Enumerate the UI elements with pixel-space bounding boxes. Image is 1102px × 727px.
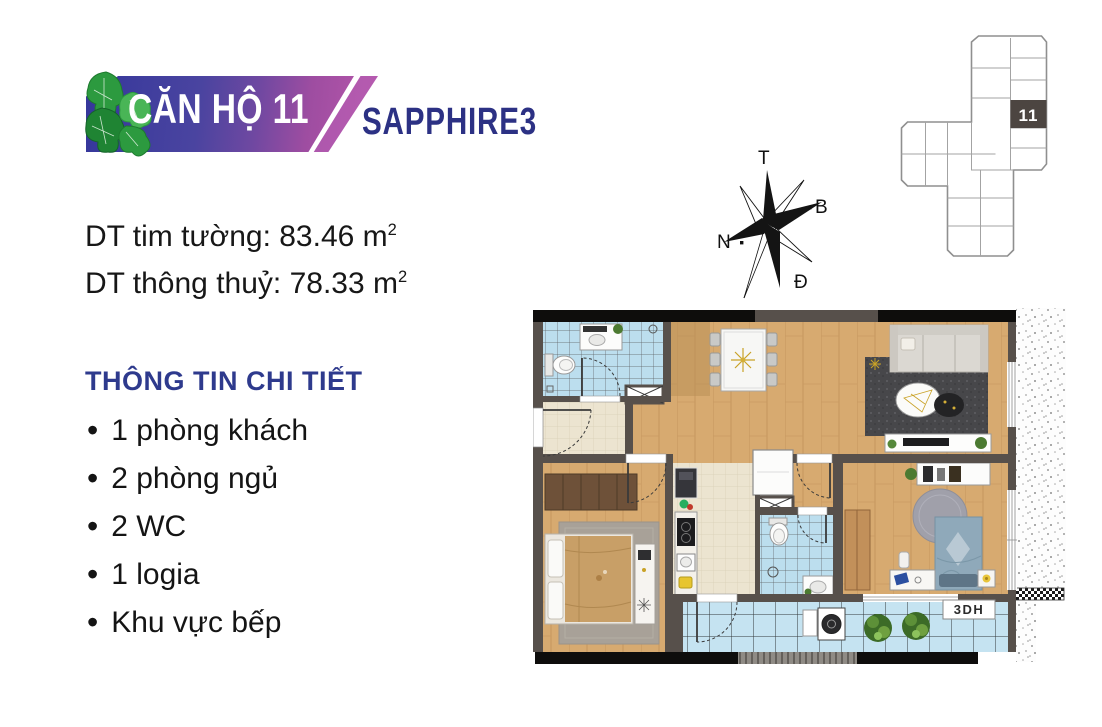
area-line-gross: DT tim tường: 83.46 m2 [85, 210, 407, 257]
area-line-net: DT thông thuỷ: 78.33 m2 [85, 257, 407, 304]
watermark-text: 3DH [954, 602, 985, 617]
compass-dot-west [740, 241, 743, 244]
floor-plan: 3DH [533, 306, 1078, 666]
flyer-page: CĂN HỘ 11 SAPPHIRE3 DT tim tường: 83.46 … [0, 0, 1102, 727]
details-list: 1 phòng khách 2 phòng ngủ 2 WC 1 logia K… [87, 406, 308, 646]
wood-accent-strip [665, 322, 710, 396]
compass-rose: T B N Đ [712, 146, 832, 304]
plant-icon [864, 614, 892, 642]
dining-area [710, 329, 777, 391]
details-heading: THÔNG TIN CHI TIẾT [85, 366, 362, 397]
compass-label-top: T [758, 148, 770, 169]
plant-icon [902, 612, 930, 640]
wardrobe [545, 474, 637, 510]
list-item: Khu vực bếp [87, 598, 308, 646]
compass-label-left: N [717, 232, 731, 253]
entry-door-opening [533, 408, 543, 447]
list-item: 1 phòng khách [87, 406, 308, 454]
list-item: 1 logia [87, 550, 308, 598]
plant-icon [975, 437, 987, 449]
coffee-table [896, 383, 940, 417]
building-outline [902, 36, 1047, 256]
bathroom-2 [760, 515, 833, 600]
tv-icon [903, 438, 949, 446]
list-item: 2 WC [87, 502, 308, 550]
side-table [934, 393, 964, 417]
plant-icon [613, 324, 623, 334]
compass-label-bottom: Đ [794, 272, 808, 293]
kitchen [673, 463, 755, 600]
compass-dot-east [808, 206, 811, 209]
unit-title: CĂN HỘ 11 [128, 85, 309, 133]
project-name: SAPPHIRE3 [362, 101, 537, 144]
plant-icon [905, 468, 917, 480]
building-key-plan: 11 [868, 28, 1083, 266]
list-item: 2 phòng ngủ [87, 454, 308, 502]
area-info: DT tim tường: 83.46 m2 DT thông thuỷ: 78… [85, 210, 407, 304]
compass-label-right: B [815, 197, 828, 218]
exterior-texture [1008, 308, 1066, 662]
watermark-label: 3DH [943, 600, 995, 619]
pillow [939, 574, 978, 587]
unit-number-label: 11 [1019, 106, 1039, 125]
